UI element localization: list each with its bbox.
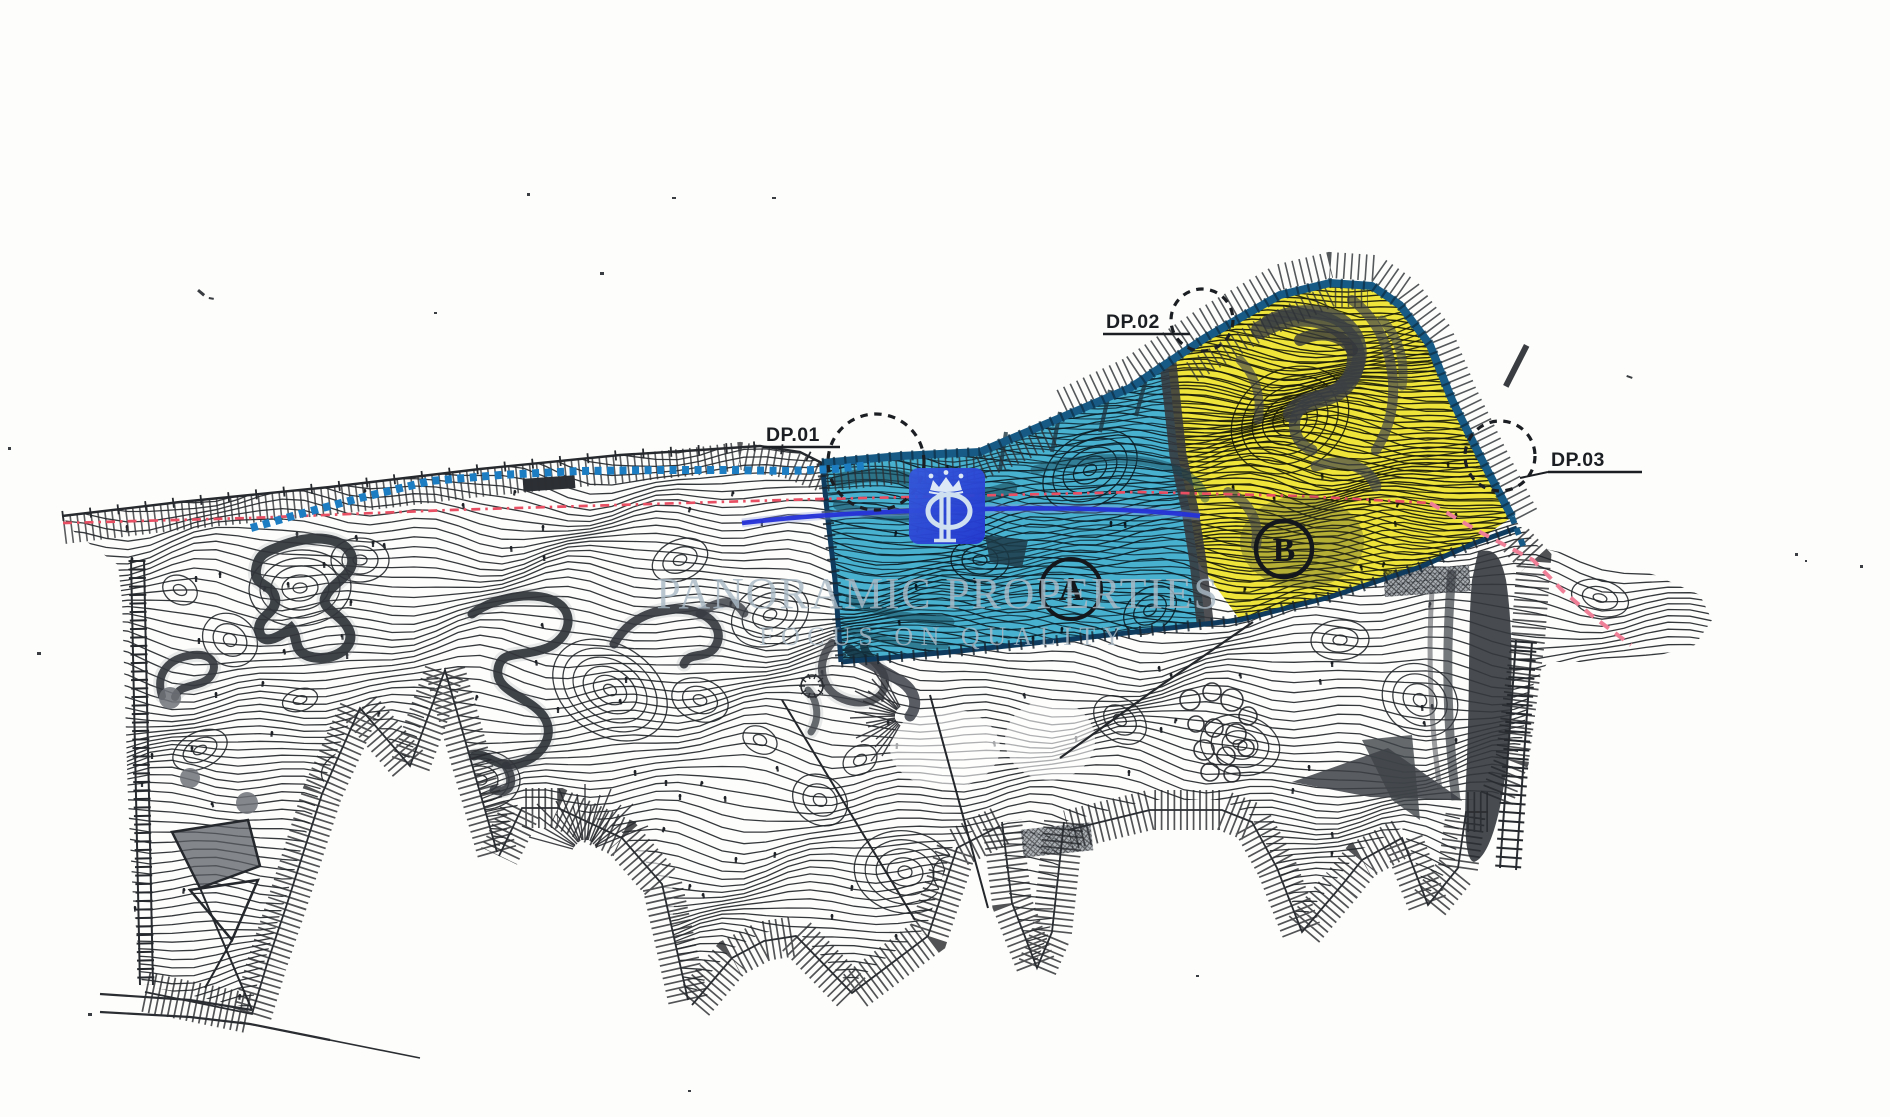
svg-text:DP.02: DP.02: [1106, 311, 1160, 333]
svg-text:FOCUS ON QUALITY: FOCUS ON QUALITY: [759, 622, 1129, 651]
svg-text:DP.03: DP.03: [1551, 449, 1605, 471]
svg-text:DP.01: DP.01: [766, 424, 820, 446]
svg-text:PANORAMIC PROPERTIES: PANORAMIC PROPERTIES: [656, 569, 1220, 618]
svg-text:B: B: [1273, 532, 1296, 569]
